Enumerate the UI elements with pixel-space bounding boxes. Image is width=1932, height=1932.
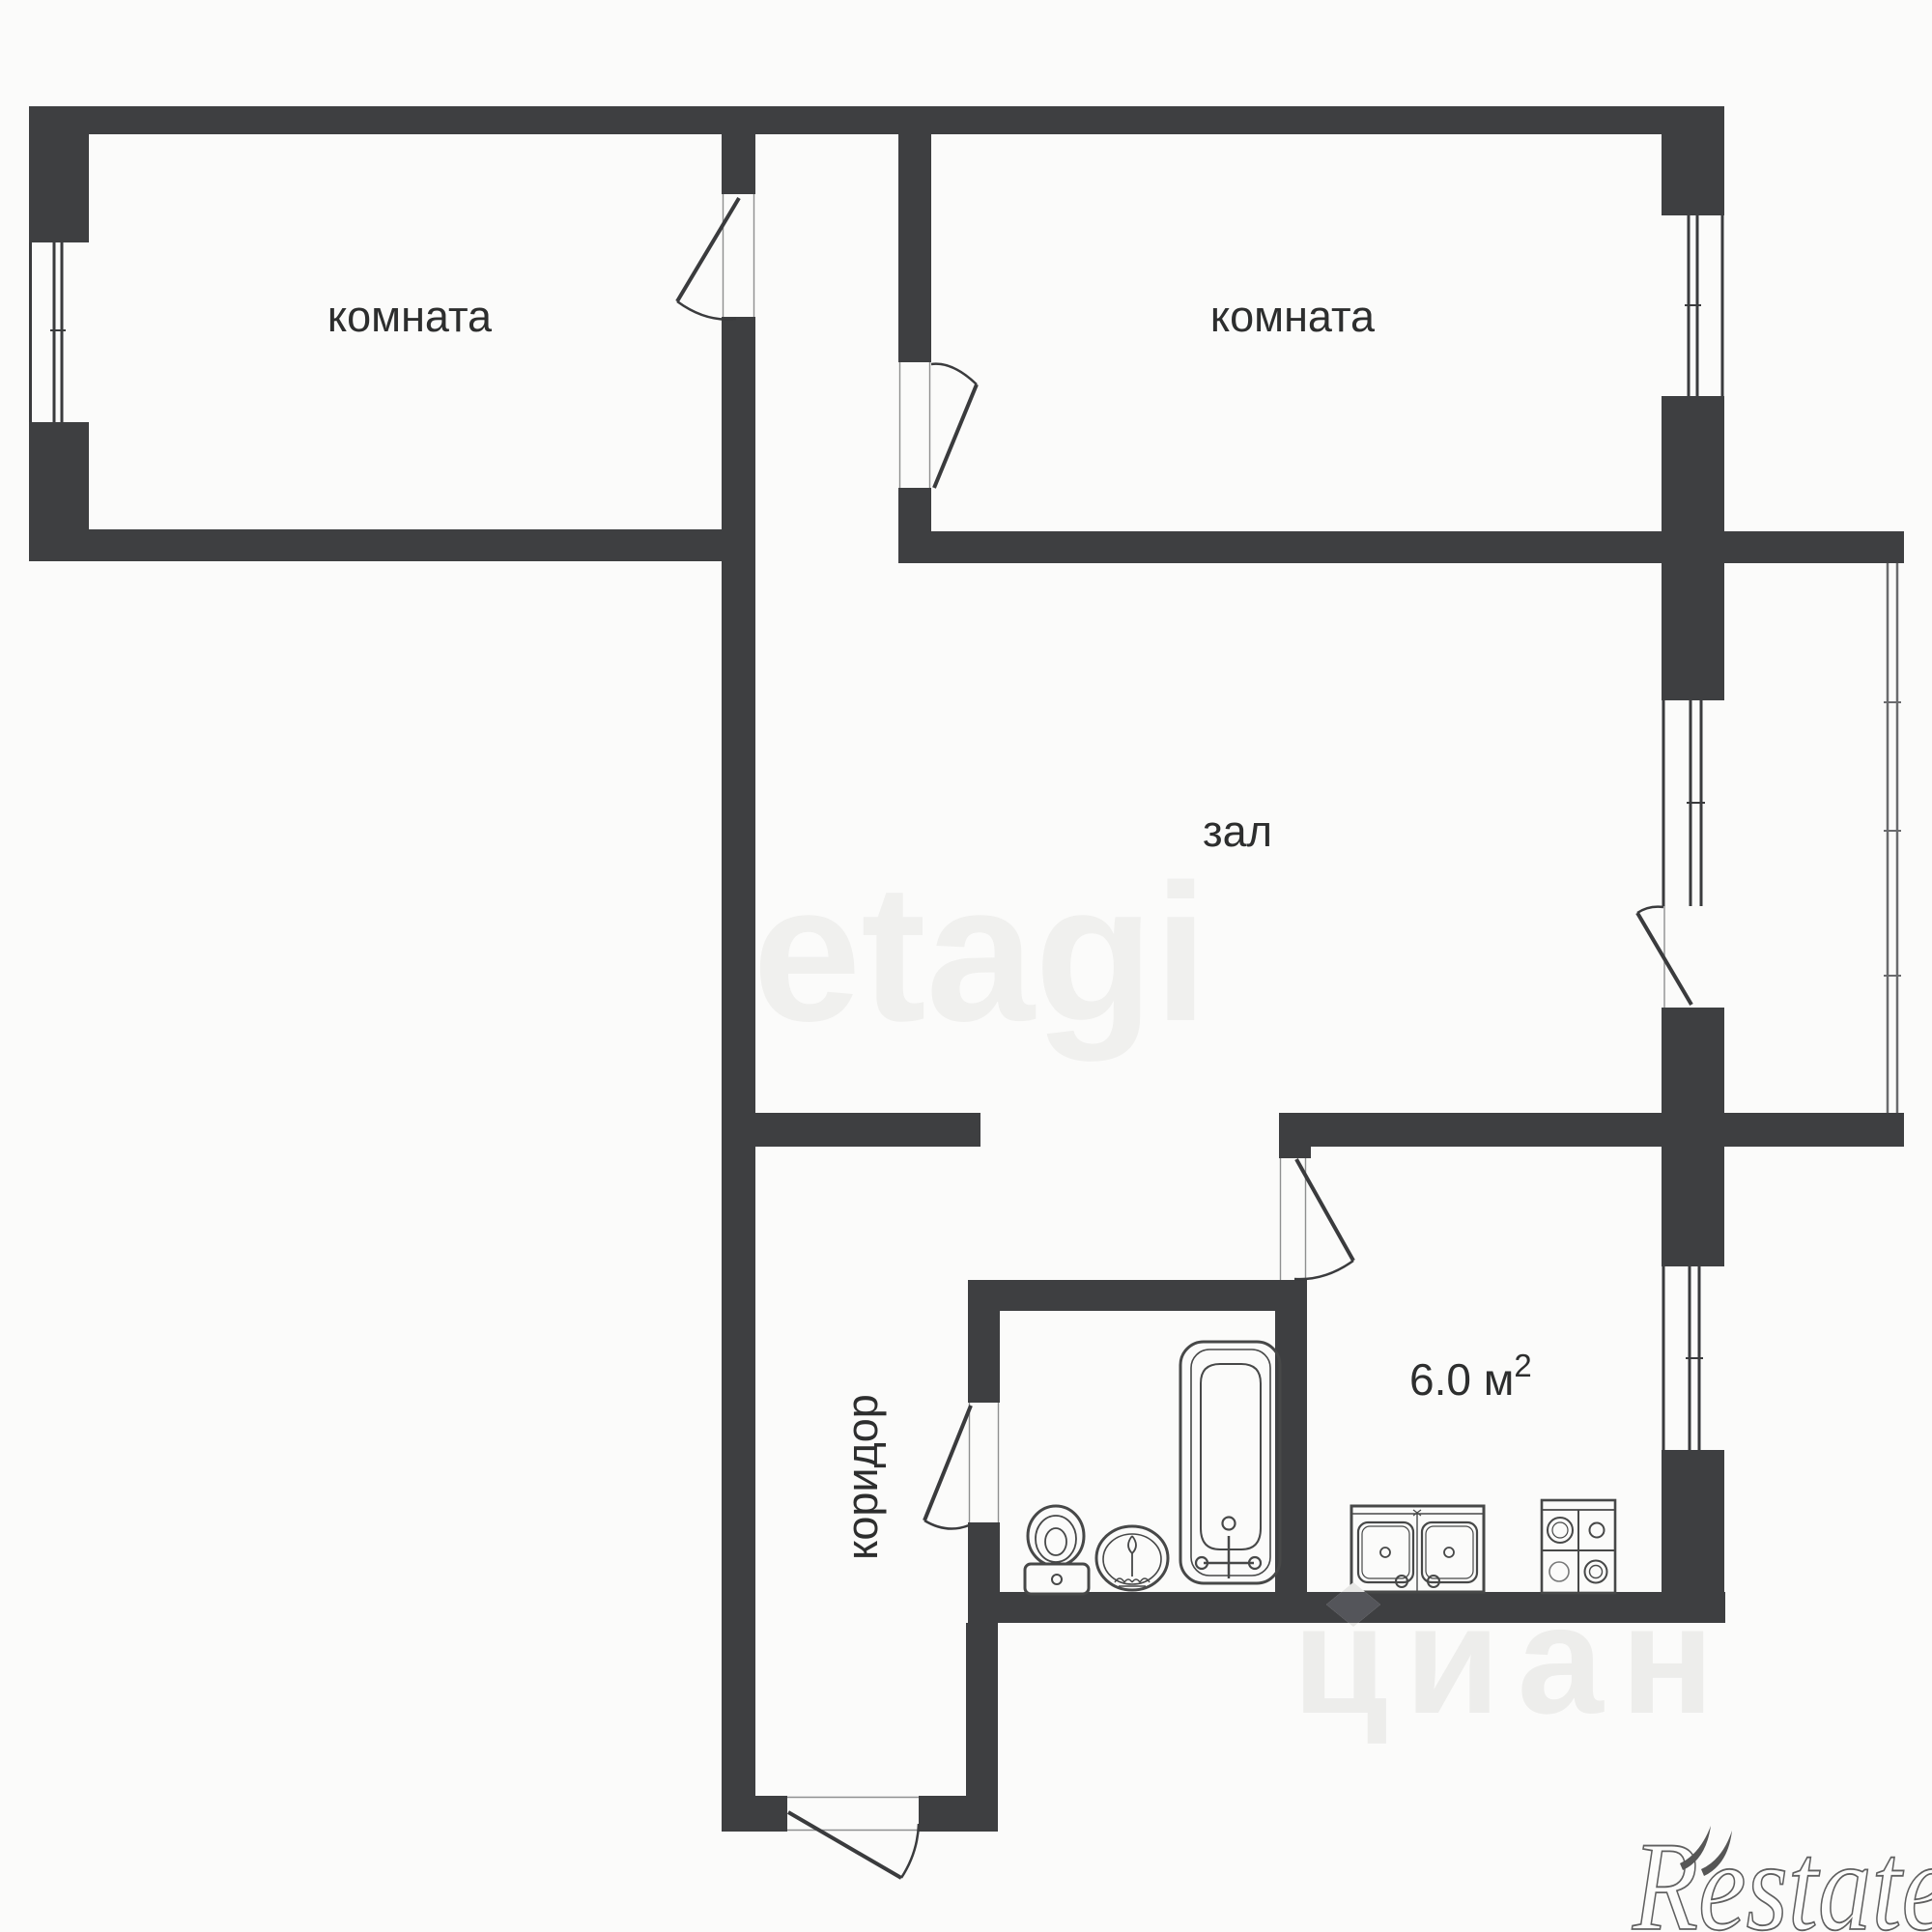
svg-text:etagi: etagi: [753, 843, 1207, 1062]
svg-text:комната: комната: [1210, 292, 1376, 341]
svg-text:коридор: коридор: [838, 1394, 887, 1560]
svg-text:зал: зал: [1203, 807, 1272, 856]
svg-text:Restate: Restate: [1632, 1815, 1932, 1932]
svg-text:комната: комната: [327, 292, 493, 341]
svg-text:6.0 м2: 6.0 м2: [1409, 1348, 1532, 1405]
svg-text:циан: циан: [1293, 1573, 1731, 1746]
